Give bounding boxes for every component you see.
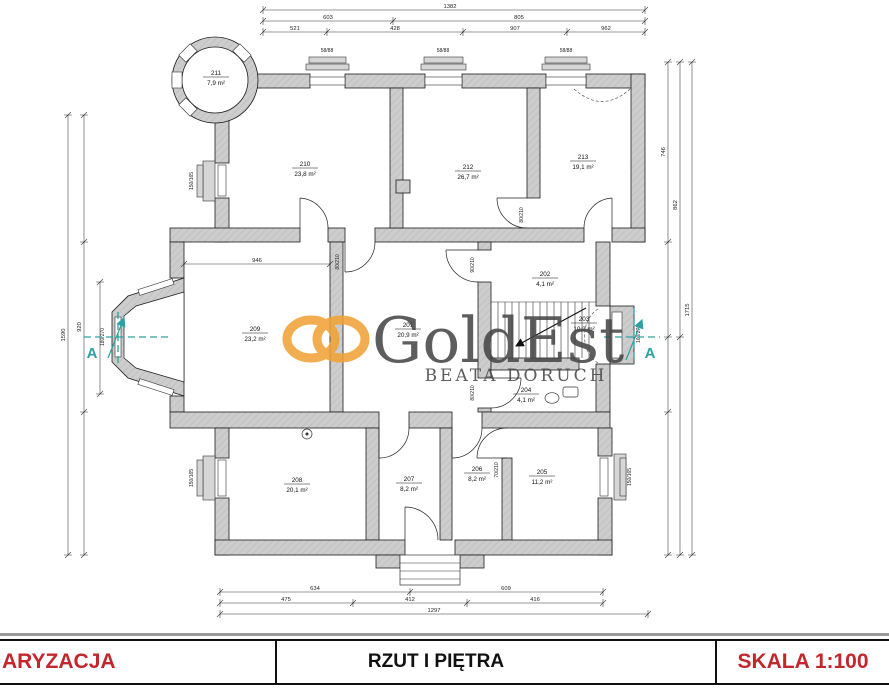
dim-label: 1382 bbox=[444, 4, 457, 10]
entrance-steps bbox=[376, 555, 484, 585]
svg-text:205: 205 bbox=[537, 469, 548, 476]
dim-label: 521 bbox=[290, 26, 300, 32]
svg-text:26,7 m²: 26,7 m² bbox=[457, 174, 478, 181]
dim-label: 1297 bbox=[428, 608, 441, 614]
dimension-lines-left: 1590 920 bbox=[61, 112, 104, 558]
svg-text:20,1 m²: 20,1 m² bbox=[286, 487, 307, 494]
doc-type-cell: ARYZACJA bbox=[0, 641, 277, 683]
room-label-204: 2044,1 m² bbox=[513, 387, 539, 404]
room-label-207: 2078,2 m² bbox=[396, 476, 422, 493]
svg-text:19,1 m²: 19,1 m² bbox=[572, 164, 593, 171]
window-size-label: 58/88 bbox=[437, 48, 450, 54]
svg-text:4,1 m²: 4,1 m² bbox=[517, 397, 535, 404]
dim-label: 962 bbox=[601, 26, 611, 32]
door-size-label: 80/210 bbox=[470, 385, 476, 401]
svg-text:8,2 m²: 8,2 m² bbox=[468, 476, 486, 483]
room-label-209: 20923,2 m² bbox=[242, 326, 268, 343]
dim-label: 746 bbox=[661, 147, 667, 157]
room-label-205: 20511,2 m² bbox=[529, 469, 555, 486]
room-label-212: 21226,7 m² bbox=[455, 164, 481, 181]
dim-label: 609 bbox=[501, 586, 511, 592]
svg-text:207: 207 bbox=[404, 476, 415, 483]
dim-label: 1590 bbox=[61, 329, 67, 342]
svg-text:11,2 m²: 11,2 m² bbox=[532, 479, 553, 486]
drawing-title-cell: RZUT I PIĘTRA bbox=[277, 641, 717, 683]
door-size-label: 90/210 bbox=[470, 257, 476, 273]
scale-label: SKALA 1:100 bbox=[737, 650, 868, 674]
svg-text:202: 202 bbox=[540, 271, 551, 278]
window-size-label: 58/88 bbox=[321, 48, 334, 54]
dim-label: 946 bbox=[252, 258, 262, 264]
dim-label: 412 bbox=[405, 597, 415, 603]
divider-line bbox=[0, 633, 889, 636]
dimension-lines-bottom: 634 609 475 412 416 1297 bbox=[217, 586, 651, 618]
window-size-label: 150/165 bbox=[627, 468, 633, 486]
svg-text:7,9 m²: 7,9 m² bbox=[207, 80, 225, 87]
windows bbox=[197, 57, 630, 500]
dim-label: 416 bbox=[530, 597, 540, 603]
svg-text:206: 206 bbox=[472, 466, 483, 473]
room-label-208: 20820,1 m² bbox=[284, 477, 310, 494]
dim-label: 428 bbox=[390, 26, 400, 32]
door-size-label: 80/210 bbox=[519, 207, 525, 223]
section-label: A bbox=[645, 345, 656, 362]
svg-text:4,1 m²: 4,1 m² bbox=[536, 281, 554, 288]
title-table: ARYZACJA RZUT I PIĘTRA SKALA 1:100 bbox=[0, 639, 889, 685]
room-label-210: 21023,8 m² bbox=[292, 161, 318, 178]
svg-text:23,2 m²: 23,2 m² bbox=[244, 336, 265, 343]
room-label-202: 2024,1 m² bbox=[532, 271, 558, 288]
turret-window bbox=[172, 72, 182, 88]
room-label-213: 21319,1 m² bbox=[570, 154, 596, 171]
svg-text:204: 204 bbox=[521, 387, 532, 394]
dimension-lines-right: 746 862 1715 bbox=[661, 59, 696, 558]
watermark-subtitle-text: BEATA DORUCH bbox=[425, 366, 608, 386]
toilet-icon bbox=[545, 393, 559, 404]
dim-label: 634 bbox=[310, 586, 320, 592]
room-label-206: 2068,2 m² bbox=[464, 466, 490, 483]
title-block: ARYZACJA RZUT I PIĘTRA SKALA 1:100 bbox=[0, 633, 889, 685]
doc-type-label: ARYZACJA bbox=[2, 650, 116, 674]
sink-icon bbox=[563, 387, 578, 397]
dim-label: 805 bbox=[514, 15, 524, 21]
window-size-label: 150/165 bbox=[189, 172, 195, 190]
svg-text:212: 212 bbox=[463, 164, 474, 171]
door-size-label: 80/210 bbox=[335, 254, 341, 270]
svg-text:209: 209 bbox=[250, 326, 261, 333]
window-size-label: 58/88 bbox=[560, 48, 573, 54]
dim-label: 907 bbox=[510, 26, 520, 32]
drawing-title: RZUT I PIĘTRA bbox=[368, 651, 504, 673]
watermark-logo-icon bbox=[287, 320, 365, 358]
scale-cell: SKALA 1:100 bbox=[717, 641, 889, 683]
dimension-lines-top: 1382 603 805 521 428 907 962 bbox=[260, 4, 648, 36]
svg-text:208: 208 bbox=[292, 477, 303, 484]
dim-label: 862 bbox=[673, 200, 679, 210]
svg-text:23,8 m²: 23,8 m² bbox=[294, 171, 315, 178]
dim-label: 475 bbox=[281, 597, 291, 603]
window-size-label: 150/165 bbox=[189, 469, 195, 487]
section-label: A bbox=[87, 345, 98, 362]
dim-label: 920 bbox=[77, 322, 83, 332]
dim-label: 603 bbox=[323, 15, 333, 21]
floor-plan-drawing: 1382 603 805 521 428 907 962 634 609 475… bbox=[0, 0, 889, 632]
dim-label: 1715 bbox=[685, 304, 691, 317]
svg-text:8,2 m²: 8,2 m² bbox=[400, 486, 418, 493]
door-size-label: 70/210 bbox=[494, 462, 500, 478]
interior-dimension: 946 bbox=[181, 258, 333, 268]
svg-text:211: 211 bbox=[211, 70, 222, 77]
svg-text:213: 213 bbox=[578, 154, 589, 161]
svg-text:210: 210 bbox=[300, 161, 311, 168]
